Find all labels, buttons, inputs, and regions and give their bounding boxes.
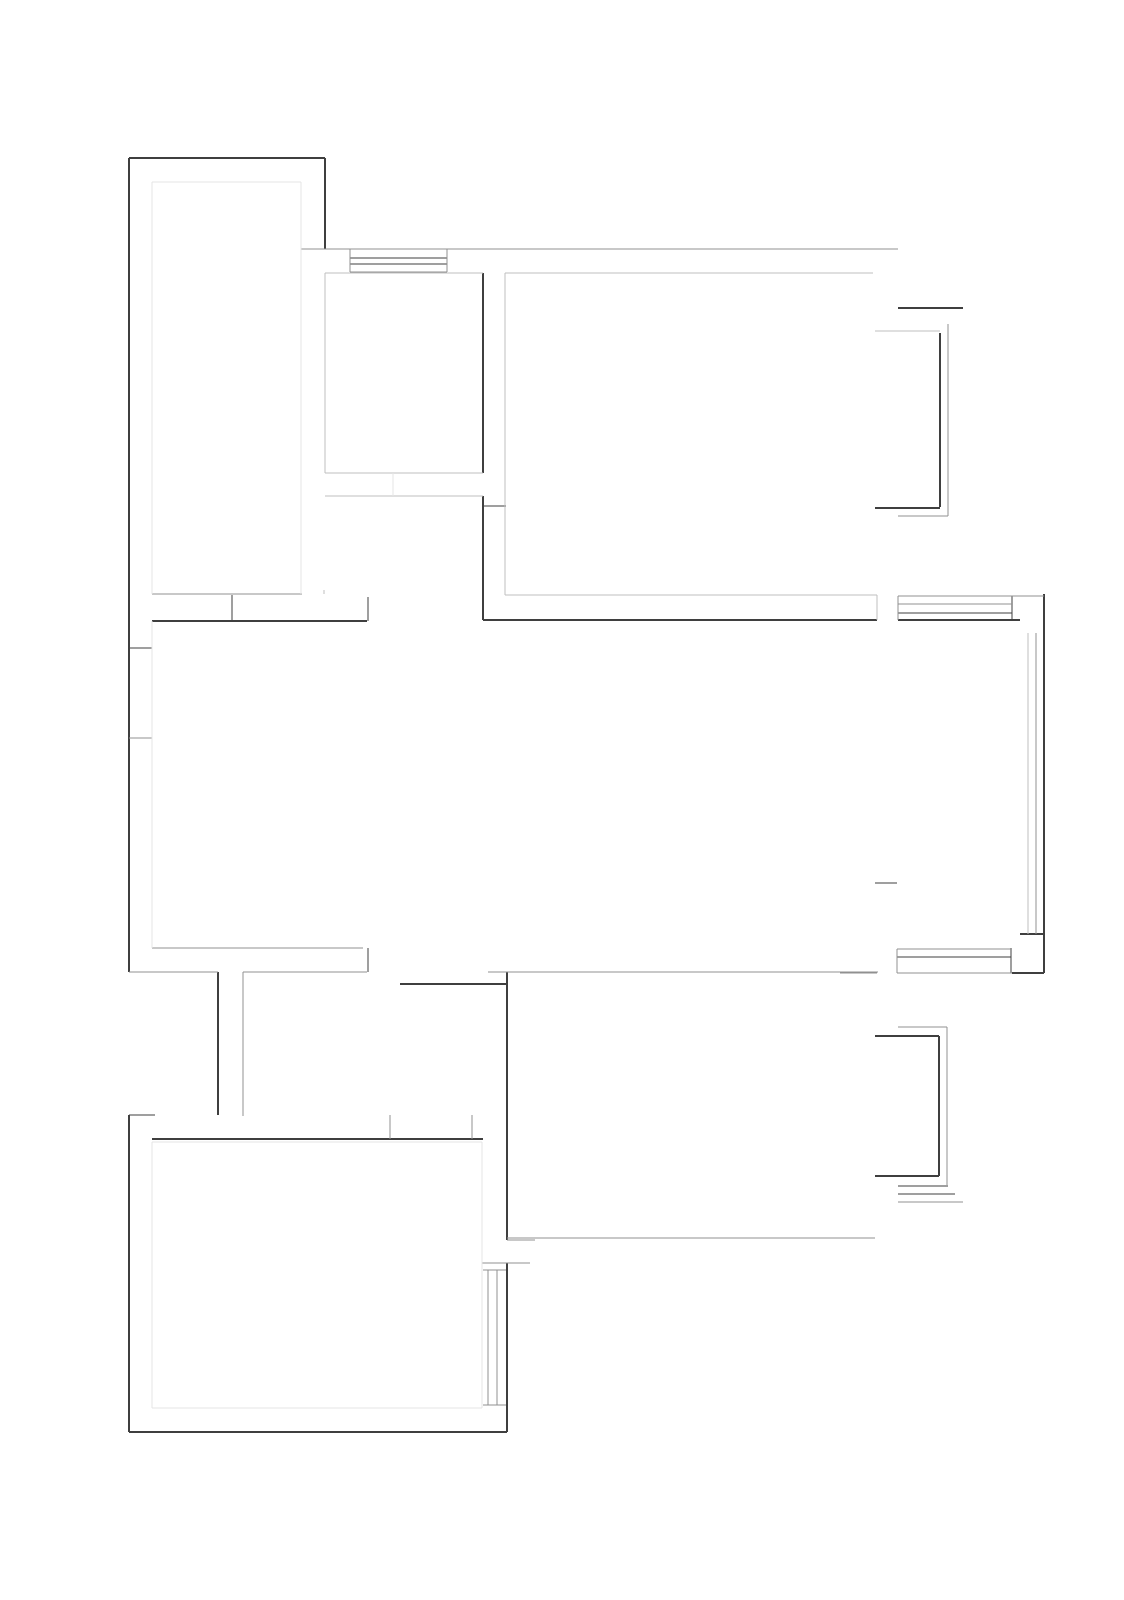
floor-plan-page xyxy=(0,0,1124,1600)
floor-plan-canvas xyxy=(0,0,1124,1600)
